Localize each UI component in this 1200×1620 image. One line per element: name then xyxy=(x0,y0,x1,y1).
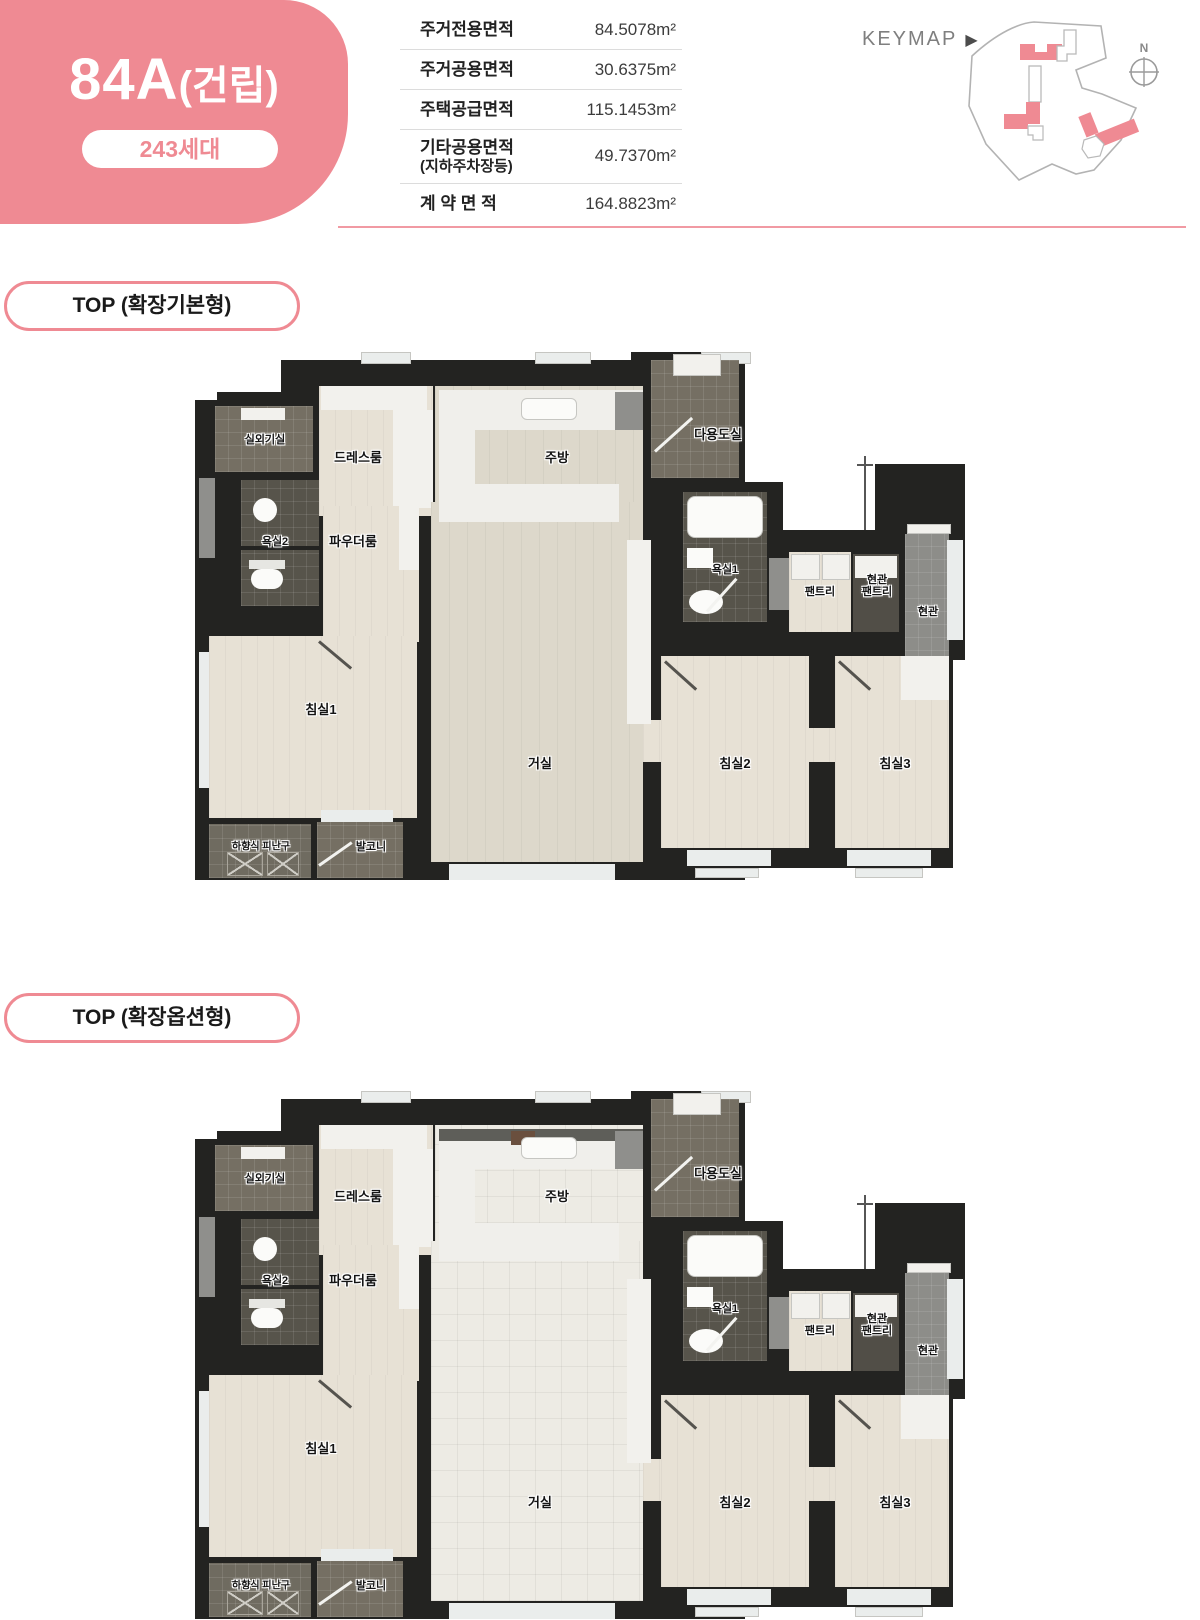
plan-shape xyxy=(399,1245,419,1309)
room-label-entry: 현관 xyxy=(918,606,938,618)
compass-n: N xyxy=(1140,41,1149,55)
plan-shape xyxy=(449,1603,615,1619)
plan-shape xyxy=(822,1293,850,1319)
plan-shape xyxy=(855,1607,923,1617)
room-label-kitchen: 주방 xyxy=(545,1190,569,1204)
escape-hatch-marker xyxy=(267,1591,299,1615)
plan-shape xyxy=(209,1375,417,1557)
table-row: 주거공용면적 30.6375m² xyxy=(400,50,682,90)
area-label-line1: 기타공용면적 xyxy=(420,138,514,157)
plan-shape xyxy=(947,1279,963,1379)
unit-title-main: 84A xyxy=(69,47,178,112)
plan-shape xyxy=(791,554,820,580)
room-label-living: 거실 xyxy=(528,757,552,771)
plan-shape xyxy=(907,1263,951,1273)
room-label-utility: 다용도실 xyxy=(694,1167,742,1181)
room-label-outdoor-unit: 실외기실 xyxy=(245,434,285,446)
room-label-utility: 다용도실 xyxy=(694,428,742,442)
plan-shape xyxy=(627,540,651,724)
plan-shape xyxy=(864,1195,866,1269)
area-label: 주거전용면적 xyxy=(420,20,514,40)
plan-shape xyxy=(521,1137,577,1159)
plan-shape xyxy=(847,850,931,866)
plan-shape xyxy=(321,810,393,822)
area-label-line2: (지하주차장등) xyxy=(420,158,514,175)
plan-shape xyxy=(399,506,419,570)
plan-shape xyxy=(864,456,866,530)
plan-shape xyxy=(661,656,809,848)
room-label-bath2: 욕실2 xyxy=(262,536,288,548)
unit-title-paren: (건립) xyxy=(179,64,279,108)
plan-shape xyxy=(673,354,721,376)
plan-shape xyxy=(393,410,433,508)
plan-shape xyxy=(687,1235,763,1277)
divider-rule xyxy=(338,226,1186,228)
plan-shape xyxy=(822,554,850,580)
plan-shape xyxy=(687,1589,771,1605)
entry-pantry-line1: 현관 xyxy=(867,1313,887,1325)
building-outline-mid xyxy=(1029,66,1041,102)
plan-shape xyxy=(199,652,209,788)
table-row: 계 약 면 적 164.8823m² xyxy=(400,184,682,224)
plan-shape xyxy=(901,656,949,700)
area-value: 115.1453m² xyxy=(587,100,676,120)
room-label-bath2: 욕실2 xyxy=(262,1275,288,1287)
plan-shape xyxy=(439,1223,619,1261)
table-row: 주거전용면적 84.5078m² xyxy=(400,10,682,50)
plan-shape xyxy=(651,360,739,478)
plan-shape xyxy=(791,1293,820,1319)
plan-shape xyxy=(253,1237,277,1261)
plan-shape xyxy=(855,868,923,878)
room-label-entry: 현관 xyxy=(918,1345,938,1357)
room-label-outdoor-unit: 실외기실 xyxy=(245,1173,285,1185)
unit-header-block: 84A(건립) 243세대 xyxy=(0,0,348,224)
plan-shape xyxy=(361,352,411,364)
plan-shape xyxy=(449,864,615,880)
plan-shape xyxy=(947,540,963,640)
escape-hatch-marker xyxy=(227,852,263,876)
plan-shape xyxy=(687,1287,713,1307)
room-label-bed1: 침실1 xyxy=(305,703,336,717)
plan-shape xyxy=(253,498,277,522)
plan-shape xyxy=(393,1149,433,1247)
plan-shape xyxy=(847,1589,931,1605)
floorplan-basic: 실외기실 드레스룸 주방 다용도실 욕실2 파우더룸 욕실1 팬트리 현관팬트리… xyxy=(195,352,965,880)
plan-shape xyxy=(901,1395,949,1439)
area-label: 주거공용면적 xyxy=(420,60,514,80)
room-label-bath1: 욕실1 xyxy=(712,564,738,576)
plan1-title-badge: TOP (확장기본형) xyxy=(4,281,300,331)
area-value: 30.6375m² xyxy=(595,60,676,80)
room-label-escape: 하향식 피난구 xyxy=(232,1581,290,1592)
room-label-dress-room: 드레스룸 xyxy=(334,451,382,465)
area-value: 84.5078m² xyxy=(595,20,676,40)
table-row: 기타공용면적(지하주차장등) 49.7370m² xyxy=(400,130,682,184)
room-label-bed2: 침실2 xyxy=(719,757,750,771)
room-label-pantry: 팬트리 xyxy=(805,1325,835,1337)
plan-shape xyxy=(695,868,759,878)
room-label-escape: 하향식 피난구 xyxy=(232,842,290,853)
plan-shape xyxy=(251,1308,283,1328)
plan-shape xyxy=(905,1273,949,1403)
plan-shape xyxy=(615,1131,643,1169)
room-label-powder: 파우더룸 xyxy=(329,1274,377,1288)
area-value: 49.7370m² xyxy=(595,146,676,166)
floorplan-option: 실외기실 드레스룸 주방 다용도실 욕실2 파우더룸 욕실1 팬트리 현관팬트리… xyxy=(195,1091,965,1619)
room-label-bed2: 침실2 xyxy=(719,1496,750,1510)
escape-hatch-marker xyxy=(267,852,299,876)
plan-shape xyxy=(431,502,643,862)
area-table: 주거전용면적 84.5078m² 주거공용면적 30.6375m² 주택공급면적… xyxy=(400,10,682,224)
plan2-title-badge: TOP (확장옵션형) xyxy=(4,993,300,1043)
plan-shape xyxy=(687,850,771,866)
table-row: 주택공급면적 115.1453m² xyxy=(400,90,682,130)
plan-shape xyxy=(241,1147,285,1159)
room-label-kitchen: 주방 xyxy=(545,451,569,465)
plan-shape xyxy=(673,1093,721,1115)
keymap-label: KEYMAP xyxy=(862,28,957,51)
plan-shape xyxy=(241,408,285,420)
entry-pantry-line2: 팬트리 xyxy=(862,586,892,598)
plan-shape xyxy=(661,1395,809,1587)
unit-title: 84A(건립) xyxy=(0,46,348,113)
room-label-pantry: 팬트리 xyxy=(805,586,835,598)
plan-shape xyxy=(321,386,427,410)
brochure-page: 84A(건립) 243세대 주거전용면적 84.5078m² 주거공용면적 30… xyxy=(0,0,1200,1620)
room-label-balcony: 발코니 xyxy=(356,1580,386,1592)
entry-pantry-line2: 팬트리 xyxy=(862,1325,892,1337)
building-pink-mid1 xyxy=(1026,102,1040,124)
plan-shape xyxy=(535,352,591,364)
room-label-entry-pantry: 현관팬트리 xyxy=(862,574,892,598)
plan-shape xyxy=(535,1091,591,1103)
plan-shape xyxy=(695,1607,759,1617)
room-label-dress-room: 드레스룸 xyxy=(334,1190,382,1204)
plan-shape xyxy=(321,1549,393,1561)
plan-shape xyxy=(627,1279,651,1463)
keymap-site-map: N xyxy=(958,14,1173,194)
plan-shape xyxy=(199,1217,215,1297)
plan-shape xyxy=(769,558,789,610)
plan-shape xyxy=(905,534,949,664)
plan-shape xyxy=(251,569,283,589)
room-label-bed1: 침실1 xyxy=(305,1442,336,1456)
plan-shape xyxy=(615,392,643,430)
plan-shape xyxy=(857,464,873,466)
plan-shape xyxy=(687,548,713,568)
area-value: 164.8823m² xyxy=(585,194,676,214)
plan-shape xyxy=(687,496,763,538)
room-label-powder: 파우더룸 xyxy=(329,535,377,549)
plan-shape xyxy=(439,484,619,522)
plan-shape xyxy=(857,1203,873,1205)
plan-shape xyxy=(521,398,577,420)
area-label: 계 약 면 적 xyxy=(420,194,497,214)
room-label-bath1: 욕실1 xyxy=(712,1303,738,1315)
plan-shape xyxy=(199,478,215,558)
room-label-entry-pantry: 현관팬트리 xyxy=(862,1313,892,1337)
plan-shape xyxy=(321,1125,427,1149)
room-label-bed3: 침실3 xyxy=(879,757,910,771)
plan-shape xyxy=(199,1391,209,1527)
plan-shape xyxy=(249,560,285,569)
plan-shape xyxy=(361,1091,411,1103)
plan-shape xyxy=(249,1299,285,1308)
plan-shape xyxy=(431,1241,643,1601)
escape-hatch-marker xyxy=(227,1591,263,1615)
plan-shape xyxy=(907,524,951,534)
room-label-bed3: 침실3 xyxy=(879,1496,910,1510)
plan-shape xyxy=(769,1297,789,1349)
area-label: 주택공급면적 xyxy=(420,100,514,120)
room-label-living: 거실 xyxy=(528,1496,552,1510)
area-label: 기타공용면적(지하주차장등) xyxy=(420,138,514,175)
units-badge: 243세대 xyxy=(82,130,278,168)
building-pink-mid2 xyxy=(1004,114,1028,129)
plan-shape xyxy=(209,636,417,818)
entry-pantry-line1: 현관 xyxy=(867,574,887,586)
plan-shape xyxy=(651,1099,739,1217)
room-label-balcony: 발코니 xyxy=(356,841,386,853)
